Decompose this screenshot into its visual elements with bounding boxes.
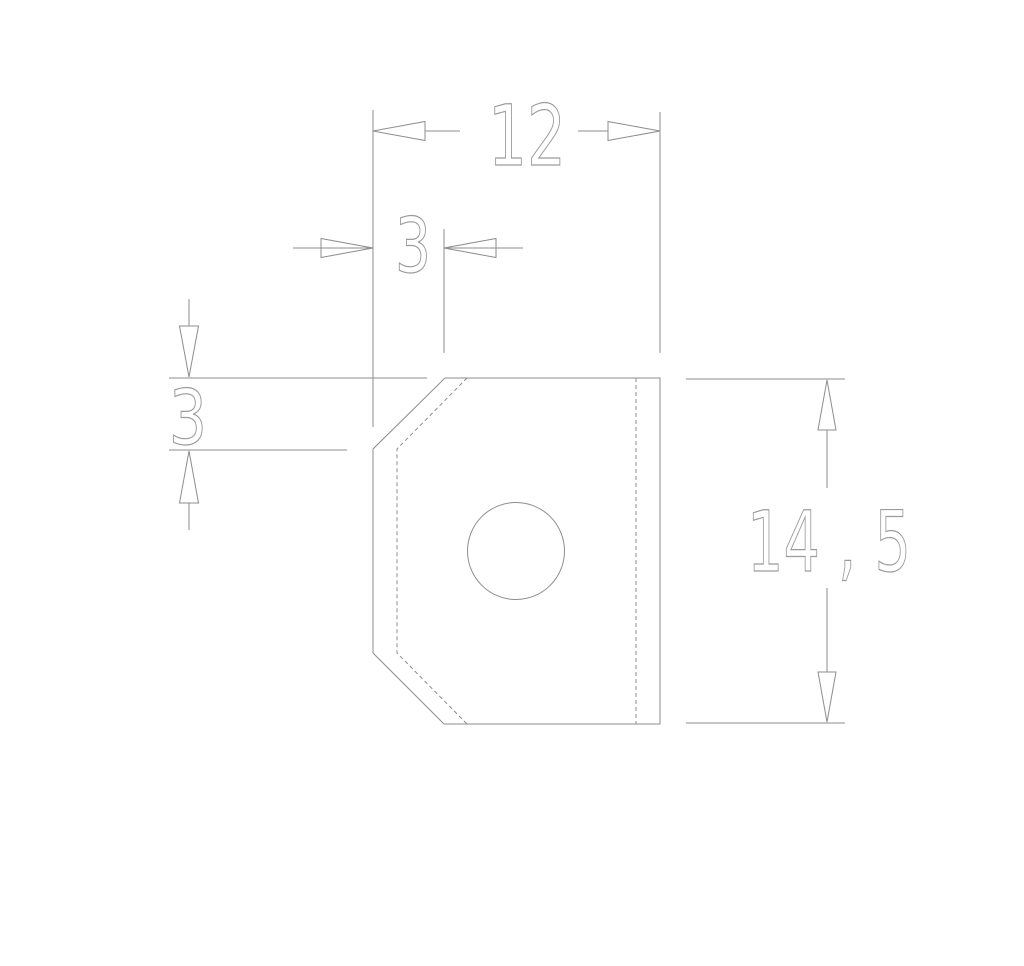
dimension-width-label: 12 xyxy=(488,87,566,185)
dimension-left-chamfer-label: 3 xyxy=(169,373,207,462)
hole-circle xyxy=(468,503,565,600)
arrow-up-icon xyxy=(818,380,836,430)
arrow-left-icon xyxy=(373,122,425,141)
technical-drawing: 12 3 3 14 , 5 xyxy=(0,0,1024,966)
dimension-height-label: 14 , 5 xyxy=(747,493,911,591)
drawing-canvas: 12 3 3 14 , 5 xyxy=(0,0,1024,966)
dimension-left-chamfer xyxy=(169,299,427,530)
part-view xyxy=(373,378,660,724)
dimension-top-chamfer-label: 3 xyxy=(395,201,431,290)
arrow-down-icon xyxy=(818,672,836,722)
bend-line-dashed-icon xyxy=(397,378,467,724)
arrow-down-icon xyxy=(180,326,199,377)
arrow-right-icon xyxy=(608,122,660,141)
